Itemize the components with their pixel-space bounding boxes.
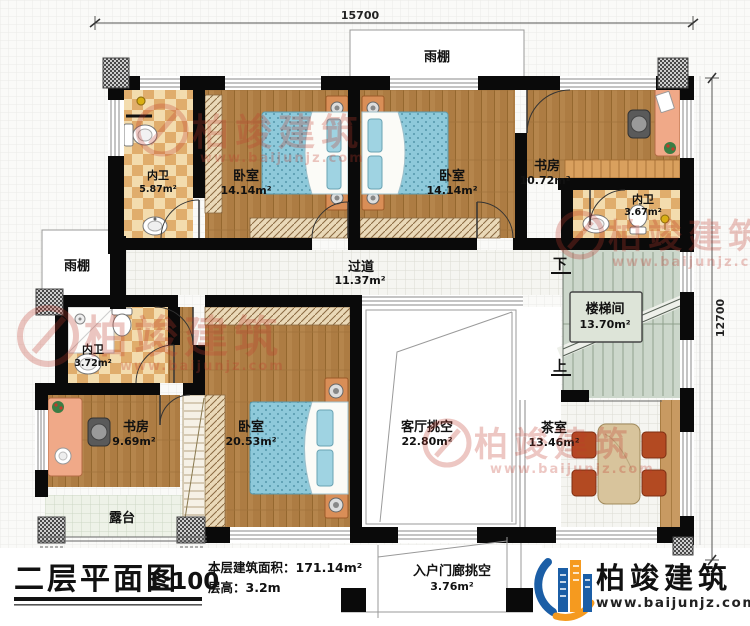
watermark-url: www.baijunjz.com: [612, 255, 750, 270]
porch-pier-right: [506, 588, 533, 612]
tea-room-wood-strip: [660, 400, 680, 527]
corridor-floor: [124, 250, 563, 295]
study-top-shelf: [565, 160, 680, 178]
window-study-left: [35, 410, 48, 470]
window-right-1: [680, 100, 694, 158]
watermark-url: www.baijunjz.com: [120, 359, 285, 374]
bedroom-top-left-area: 14.14m²: [220, 184, 271, 197]
floor-height-text: 层高：3.2m: [208, 580, 281, 595]
watermark-text: 柏竣建筑: [84, 312, 284, 363]
window-top-3: [390, 76, 478, 90]
pier-top-right: [658, 58, 688, 88]
stairwell-area: 13.70m²: [579, 318, 630, 331]
title-underline-thin: [14, 604, 202, 606]
living-void: [366, 310, 516, 524]
wardrobe-master-left: [205, 395, 225, 527]
bath-top-left-floor: [122, 90, 193, 238]
window-bottom-2: [398, 527, 477, 543]
shelf-column: [183, 395, 205, 527]
dimension-right-value: 12700: [714, 299, 727, 338]
floor-plan-page: 15700 12700 雨棚 雨棚 楼梯间 13.70m² 下: [0, 0, 750, 626]
pier-terrace-left: [38, 517, 65, 543]
window-top-1: [140, 76, 180, 90]
bedroom-top-mid-area: 14.14m²: [426, 184, 477, 197]
bath-top-left-area: 5.87m²: [139, 184, 177, 195]
watermark-url: www.baijunjz.com: [200, 151, 365, 166]
dimension-top-value: 15700: [341, 9, 380, 22]
corridor-void-railing: [362, 295, 523, 307]
study-bottom-left-area: 9.69m²: [112, 435, 156, 448]
corridor-area: 11.37m²: [334, 274, 385, 287]
study-bottom-left-label: 书房: [123, 419, 149, 435]
floor-plan-drawing: 15700 12700 雨棚 雨棚 楼梯间 13.70m² 下: [0, 0, 750, 626]
entry-porch-area: 3.76m²: [430, 580, 474, 593]
window-top-4: [560, 76, 656, 90]
pier-bottom-right: [673, 537, 693, 555]
bedroom-top-mid-label: 卧室: [439, 168, 465, 184]
brand-name: 柏竣建筑: [596, 561, 732, 595]
porch-pier-left: [341, 588, 366, 612]
watermark-text: 柏竣建筑: [192, 111, 364, 154]
corridor-label: 过道: [348, 259, 374, 275]
window-right-4: [680, 432, 694, 516]
study-top-right-label: 书房: [534, 158, 560, 174]
stairs-up-label: 上: [553, 359, 567, 375]
pier-top-left: [103, 58, 129, 88]
watermark-text: 柏竣建筑: [608, 217, 750, 257]
title-underline-thick: [14, 597, 202, 601]
stairwell-label: 楼梯间: [585, 301, 624, 317]
bath-right-label: 内卫: [632, 192, 654, 206]
window-top-2: [225, 76, 321, 90]
bath-top-left-label: 内卫: [147, 168, 169, 182]
bedroom-master-label: 卧室: [238, 419, 264, 435]
study-top-right-area: 10.72m²: [519, 174, 570, 187]
floor-area-text: 本层建筑面积：171.14m²: [208, 560, 362, 575]
wardrobe-bed1-bottom: [250, 218, 348, 238]
bedroom-master-area: 20.53m²: [225, 435, 276, 448]
window-left-top: [108, 100, 124, 156]
terrace-label: 露台: [109, 510, 135, 526]
brand-website: www.baijunjz.com: [596, 595, 750, 611]
wardrobe-bed2-bottom: [360, 218, 500, 238]
window-right-3: [680, 340, 694, 388]
stairs-down-label: 下: [553, 257, 567, 273]
canopy-top: 雨棚: [350, 30, 524, 77]
bedroom-top-left-label: 卧室: [233, 168, 259, 184]
entry-porch-label: 入户门廊挑空: [413, 563, 491, 579]
canopy-left-label: 雨棚: [64, 258, 90, 274]
watermark-text: 柏竣建筑: [474, 425, 634, 465]
canopy-left: 雨棚: [42, 230, 113, 297]
pier-terrace-right: [177, 517, 205, 543]
watermark-url: www.baijunjz.com: [490, 462, 655, 477]
window-bottom-3: [556, 527, 657, 543]
window-bottom-1: [230, 527, 350, 543]
canopy-top-label: 雨棚: [424, 49, 450, 65]
